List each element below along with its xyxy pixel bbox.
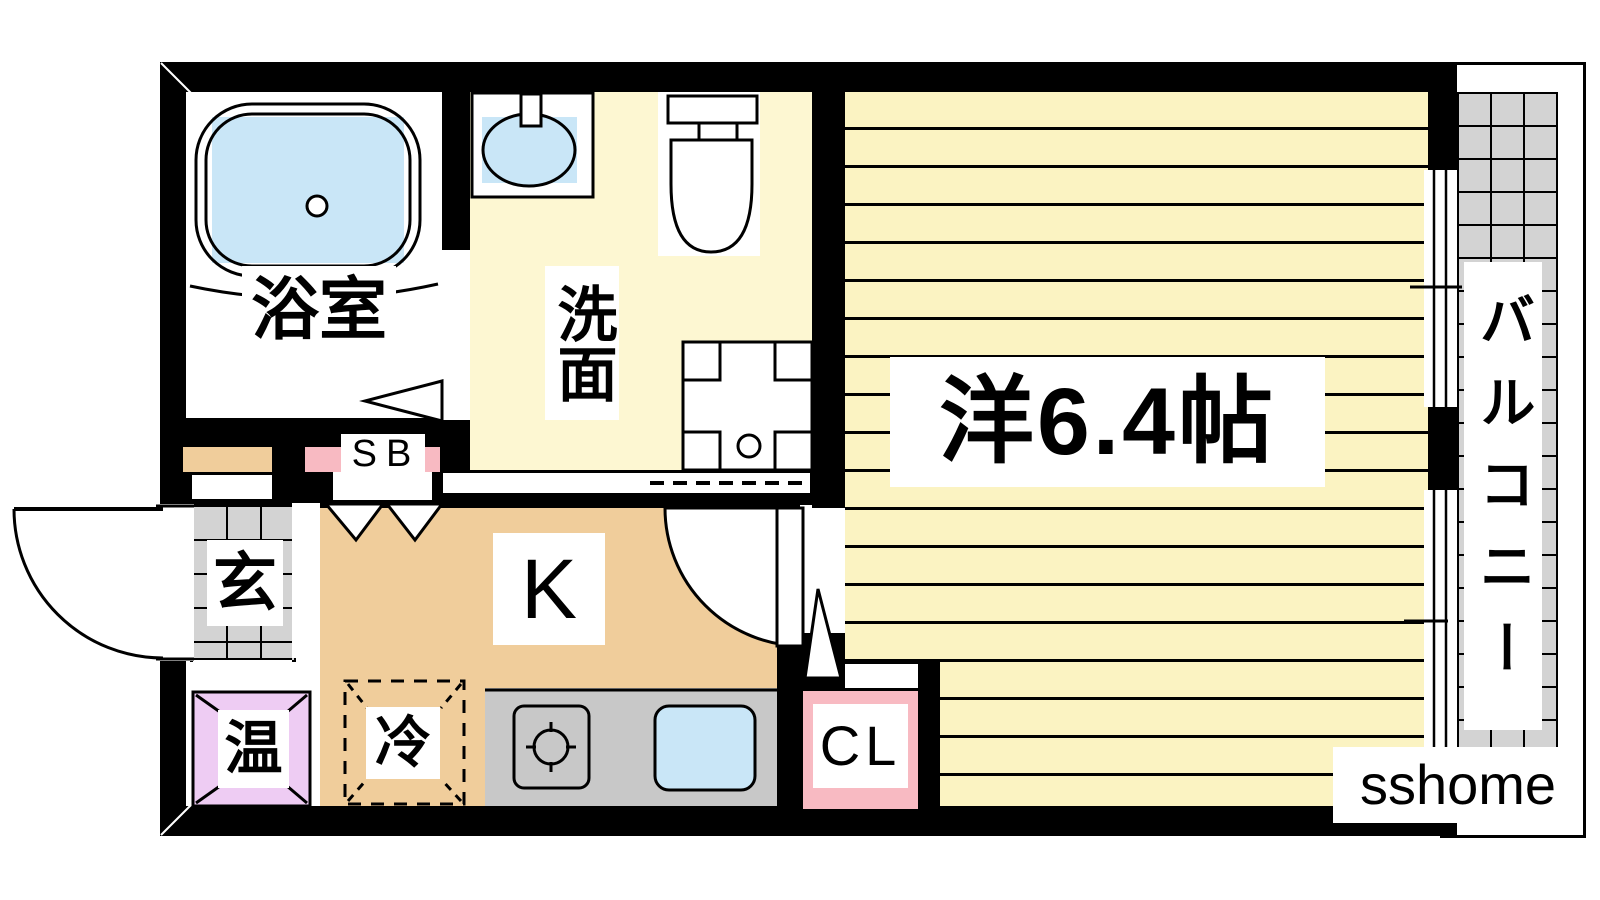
hall-tan-strip bbox=[183, 447, 272, 472]
mainroom-door-opening bbox=[800, 505, 845, 645]
washroom-label: 洗面 bbox=[545, 266, 619, 420]
bathroom-label: 浴室 bbox=[242, 266, 396, 354]
wall-bath-washroom bbox=[442, 92, 470, 250]
closet-label: CL bbox=[813, 704, 908, 788]
wall-top bbox=[160, 62, 1428, 92]
floor-plan: 浴室 洗面 SB 玄 K 温 冷 CL 洋6.4帖 バルコニー sshome bbox=[0, 0, 1600, 900]
refrigerator-label: 冷 bbox=[366, 707, 440, 779]
wall-right bbox=[1428, 62, 1457, 836]
entrance-step bbox=[193, 658, 292, 692]
wall-bottom bbox=[160, 806, 1457, 836]
water-heater-label: 温 bbox=[218, 710, 289, 788]
stove-burner-icon bbox=[534, 730, 568, 764]
wall-washroom-bottom bbox=[440, 470, 845, 508]
kitchen-label: K bbox=[493, 533, 605, 645]
shoe-box-label: SB bbox=[341, 434, 425, 474]
wall-kitchen-mainroom bbox=[777, 633, 845, 690]
wall-right-of-closet bbox=[918, 660, 940, 806]
entrance-side-strip bbox=[292, 503, 320, 658]
balcony-label: バルコニー bbox=[1464, 262, 1542, 730]
entrance-label: 玄 bbox=[207, 540, 283, 626]
washroom-floor bbox=[470, 92, 812, 470]
bathroom-floor bbox=[186, 92, 442, 418]
shoe-box-under bbox=[333, 472, 432, 500]
kitchen-counter bbox=[485, 688, 777, 806]
kitchen-sink-icon bbox=[655, 706, 755, 790]
wall-left-of-closet bbox=[777, 688, 803, 806]
hall-white-strip bbox=[192, 475, 272, 499]
wall-washroom-mainroom bbox=[812, 92, 845, 508]
main-room-label: 洋6.4帖 bbox=[890, 357, 1325, 487]
logo: sshome bbox=[1333, 747, 1583, 823]
bathroom-door-opening bbox=[442, 250, 470, 420]
